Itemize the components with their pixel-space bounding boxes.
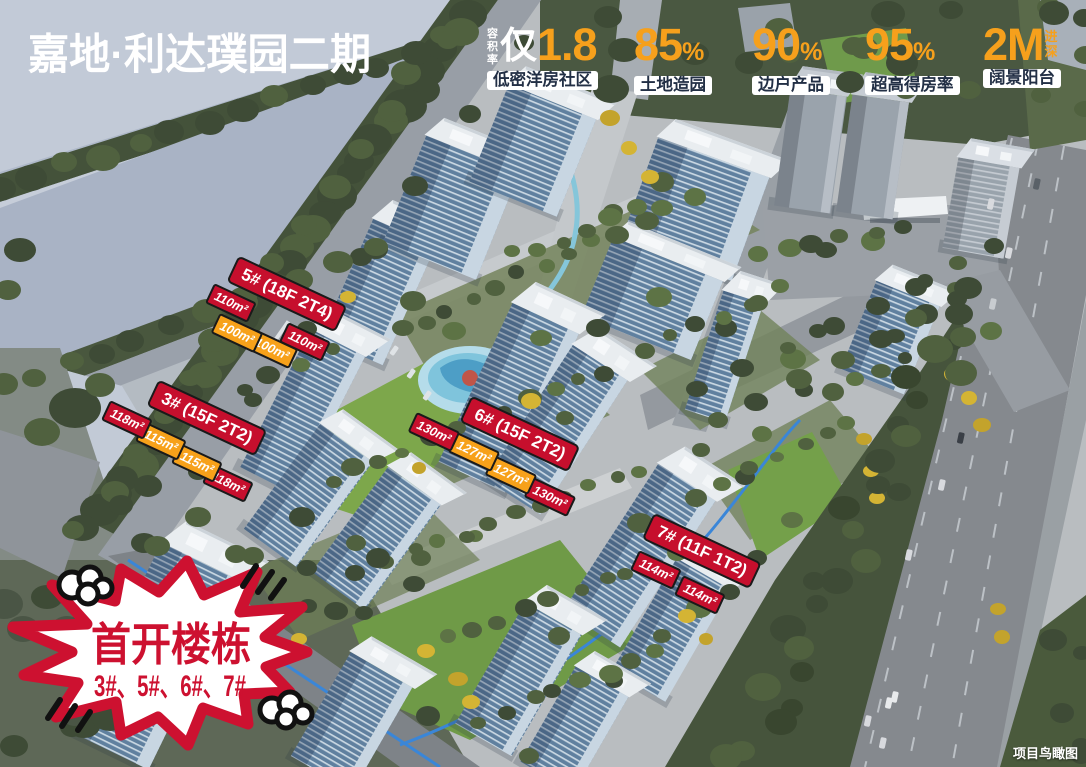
svg-text:3#、5#、6#、7#: 3#、5#、6#、7# [94, 670, 246, 703]
svg-text:首开楼栋: 首开楼栋 [91, 619, 251, 670]
